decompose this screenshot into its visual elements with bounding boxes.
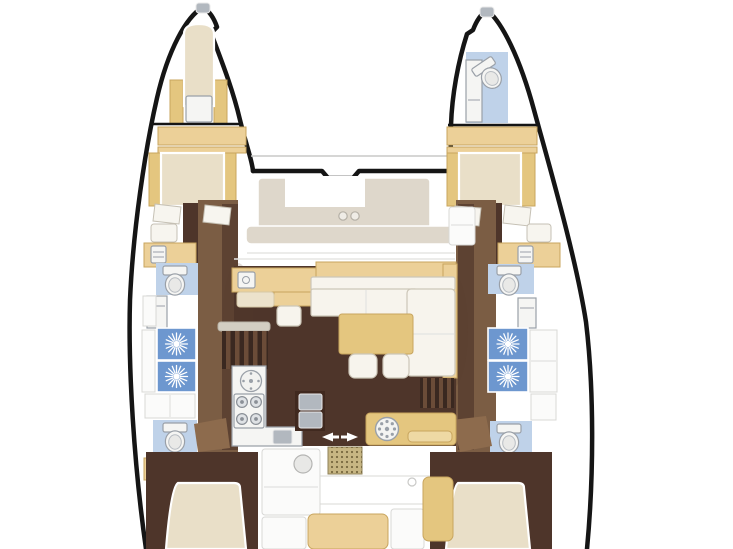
stbd-fwd-pillow-right <box>503 205 531 226</box>
stbd-fwd-bed-rail-right <box>521 153 535 206</box>
sofa-seat-side <box>407 289 455 376</box>
shower-sunburst-icon <box>166 333 188 355</box>
forepeak-berth <box>184 24 214 106</box>
stove-burner-icon <box>251 397 262 408</box>
galley-sink-drain <box>249 379 253 383</box>
fwd-seat-notch <box>285 176 365 207</box>
forepeak-hatch <box>186 96 212 122</box>
port-side-locker-a <box>143 296 156 326</box>
port-fwd-bed-rail-right <box>224 153 236 206</box>
salon-stool-right <box>383 354 409 378</box>
starboard-aft-double-bed <box>446 483 530 549</box>
stbd-companionway-steps <box>420 378 454 408</box>
fwd-cockpit-bench <box>246 226 456 244</box>
stbd-aft-toilet-icon <box>497 424 521 453</box>
sofa-backrest <box>311 277 455 290</box>
cockpit-round-table <box>294 455 312 473</box>
catamaran-floorplan <box>0 0 733 549</box>
companionway-mat <box>328 447 362 474</box>
nav-bench <box>237 292 274 307</box>
starboard-deck-band <box>447 127 537 145</box>
shower-sunburst-icon <box>166 366 188 388</box>
port-steps-lip <box>218 322 270 331</box>
stove-burner-icon <box>237 397 248 408</box>
salon-table <box>339 314 413 354</box>
port-fwd-toilet-icon <box>163 266 187 295</box>
port-fwd-pillow-left <box>153 204 181 224</box>
cockpit-cushion <box>308 514 388 549</box>
cup-holder-icon <box>351 212 359 220</box>
foredeck <box>246 176 475 253</box>
console-step <box>408 431 452 442</box>
winch-icon <box>376 418 399 441</box>
salon-window-sill <box>316 262 456 277</box>
stbd-locker-aft <box>531 394 556 420</box>
stbd-fwd-drawer-icon <box>518 246 533 263</box>
cockpit-bench-port-aft <box>262 517 306 549</box>
galley-twin-sink-fwd-icon <box>299 394 322 410</box>
port-deck-band <box>158 127 246 145</box>
port-fwd-pillow-right <box>203 205 231 225</box>
port-fwd-drawer-icon <box>151 246 166 263</box>
port-side-locker-b <box>142 330 155 392</box>
nav-seat <box>277 306 301 326</box>
cockpit-bench-port <box>262 449 320 515</box>
stbd-fwd-bed-rail-left <box>447 153 459 206</box>
port-fwd-seat <box>151 224 177 242</box>
port-fwd-double-bed <box>161 153 224 206</box>
port-companionway-steps <box>222 331 268 369</box>
cockpit-detail-circle <box>408 478 416 486</box>
nav-shelf <box>274 292 316 306</box>
port-bow-fitting <box>196 3 210 13</box>
cup-holder-icon <box>339 212 347 220</box>
shower-sunburst-icon <box>497 333 519 355</box>
starboard-fwd-double-bed <box>459 153 521 206</box>
salon-stool-left <box>349 354 377 378</box>
galley-twin-sink-aft-icon <box>299 412 322 428</box>
port-aft-toilet-icon <box>163 423 187 452</box>
forepeak-rail-right <box>214 80 227 124</box>
stove-burner-icon <box>251 414 262 425</box>
fwd-cockpit-locker <box>449 207 475 245</box>
stbd-fwd-vanity <box>518 298 536 328</box>
forepeak-rail-left <box>170 80 183 124</box>
counter-sink-icon <box>238 272 255 288</box>
cockpit-table <box>391 509 424 549</box>
sofa-seat-front <box>311 289 417 316</box>
shower-sunburst-icon <box>497 366 519 388</box>
stove-burner-icon <box>237 414 248 425</box>
salon <box>218 259 468 446</box>
stbd-fwd-toilet-icon <box>497 266 521 295</box>
cockpit-bench-stbd <box>423 477 453 541</box>
floorplan-stage <box>0 0 733 549</box>
port-fwd-bed-rail-left <box>149 153 161 206</box>
starboard-bow-fitting <box>480 7 494 17</box>
port-aft-double-bed <box>166 483 246 549</box>
port-companionway-door <box>194 418 230 452</box>
galley-oven-icon <box>273 430 292 444</box>
stbd-fwd-seat <box>527 224 551 242</box>
cockpit <box>262 447 453 549</box>
